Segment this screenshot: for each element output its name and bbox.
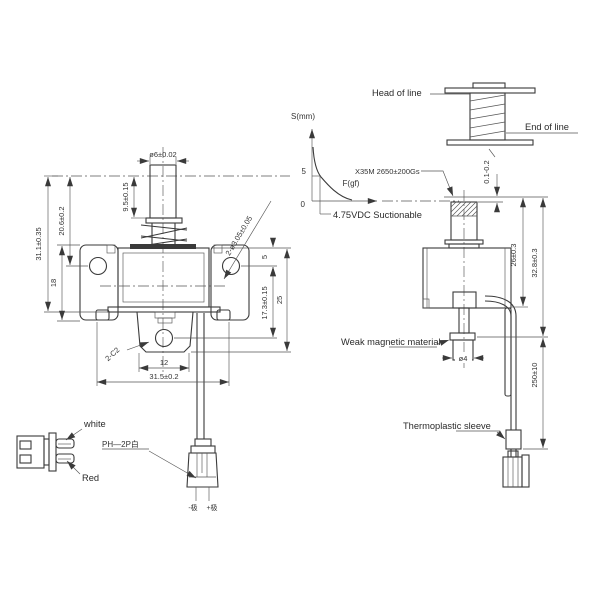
mount-hole-right — [223, 258, 240, 275]
side-body — [423, 248, 511, 308]
pin-red — [56, 454, 74, 463]
dim-spring-height: 9.5±0.15 — [121, 182, 130, 211]
pin-white — [56, 439, 74, 448]
dim-side-body-height: 26±0.3 — [509, 244, 518, 267]
force-curve — [313, 147, 352, 200]
dim-rod-diameter: ø6±0.02 — [149, 150, 176, 159]
weak-magnetic-label: Weak magnetic material — [341, 337, 441, 347]
dim-lower-height: 17.3±0.15 — [260, 286, 269, 319]
positive-pole-label: +极 — [206, 503, 217, 512]
connector-type-label: PH—2P白 — [102, 439, 139, 449]
mount-hole-left — [90, 258, 107, 275]
magnet-note-leader — [421, 171, 453, 196]
ph2p-housing — [187, 453, 218, 487]
force-stroke-graph: S(mm) F(gf) 5 0 X35M 2650±200Gs 4.75VDC … — [291, 112, 453, 220]
wire-connector-detail: white Red — [17, 419, 106, 483]
dim-body-height: 25 — [275, 296, 284, 304]
dim-plunger-diameter: ø4 — [459, 354, 468, 363]
wire-red-label: Red — [82, 473, 99, 483]
dim-upper-height: 20.6±0.2 — [57, 206, 66, 235]
coil-winding-detail: Head of line End of line — [372, 83, 578, 157]
mounting-bracket-left — [80, 245, 118, 320]
yoke-hole — [156, 330, 173, 347]
chamfer-note: 2-C2 — [103, 345, 121, 363]
dim-side-overall-height: 32.8±0.3 — [530, 248, 539, 277]
dim-overall-height: 31.1±0.35 — [34, 227, 43, 260]
bobbin-top-flange — [445, 88, 535, 93]
spring-washer — [146, 218, 182, 223]
dim-air-gap: 0.1-0.2 — [482, 160, 491, 183]
weak-magnetic-cap — [450, 333, 475, 340]
solenoid-engineering-drawing: ø6±0.02 9.5±0.15 31.1±0.35 20.6±0.2 18 5… — [0, 0, 600, 600]
dim-mount-width: 31.5±0.2 — [149, 372, 178, 381]
dim-lead-length: 250±10 — [530, 363, 539, 388]
return-spring — [141, 225, 187, 246]
mount-hole-note: 2-ø3.05±0.05 — [224, 214, 255, 257]
engineering-drawing-page: ø6±0.02 9.5±0.15 31.1±0.35 20.6±0.2 18 5… — [0, 0, 600, 600]
dim-bracket-height: 18 — [49, 279, 58, 287]
bracket-leg — [505, 308, 511, 396]
voltage-note: 4.75VDC Suctionable — [333, 210, 422, 220]
dim-slot-width: 12 — [160, 358, 168, 367]
thermoplastic-sleeve-label: Thermoplastic sleeve — [403, 421, 491, 431]
dim-hole-offset: 5 — [260, 255, 269, 259]
end-of-line-label: End of line — [525, 122, 569, 132]
negative-pole-label: -极 — [188, 503, 197, 512]
thermoplastic-sleeve — [506, 430, 521, 449]
x-axis-label: F(gf) — [343, 179, 360, 188]
front-view: ø6±0.02 9.5±0.15 31.1±0.35 20.6±0.2 18 5… — [34, 150, 291, 439]
front-dimension-lines — [48, 161, 287, 382]
plunger-hatching — [451, 202, 477, 216]
winding-turns — [470, 95, 505, 157]
ph2p-connector-detail: PH—2P白 -极 +极 — [102, 439, 218, 512]
magnet-note: X35M 2650±200Gs — [355, 167, 420, 176]
y-tick-5: 5 — [302, 167, 307, 176]
origin-label: 0 — [301, 200, 306, 209]
wire-white-label: white — [83, 419, 106, 429]
bobbin-bottom-flange — [447, 140, 533, 145]
solenoid-body — [118, 248, 209, 307]
base-plate — [108, 307, 220, 312]
head-of-line-label: Head of line — [372, 88, 422, 98]
y-axis-label: S(mm) — [291, 112, 315, 121]
